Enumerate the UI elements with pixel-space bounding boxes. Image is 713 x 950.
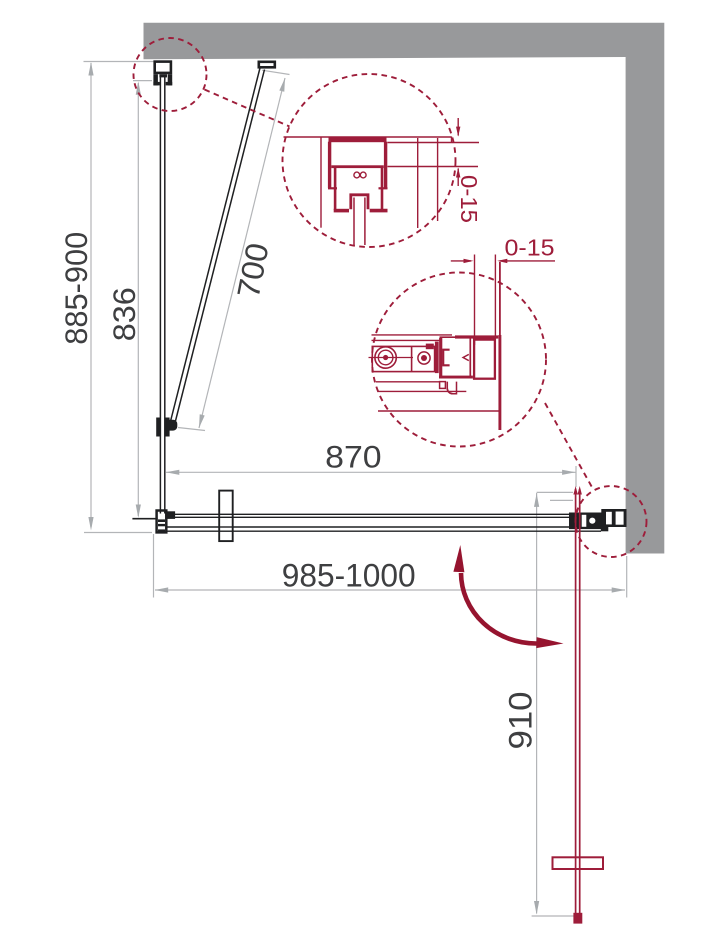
svg-text:910: 910 xyxy=(503,692,539,750)
svg-text:985-1000: 985-1000 xyxy=(282,557,416,593)
svg-text:0-15: 0-15 xyxy=(456,175,482,223)
svg-text:885-900: 885-900 xyxy=(58,232,94,345)
svg-text:836: 836 xyxy=(106,287,142,341)
svg-text:700: 700 xyxy=(230,240,276,301)
svg-text:0-15: 0-15 xyxy=(505,235,555,261)
svg-text:870: 870 xyxy=(325,439,382,475)
